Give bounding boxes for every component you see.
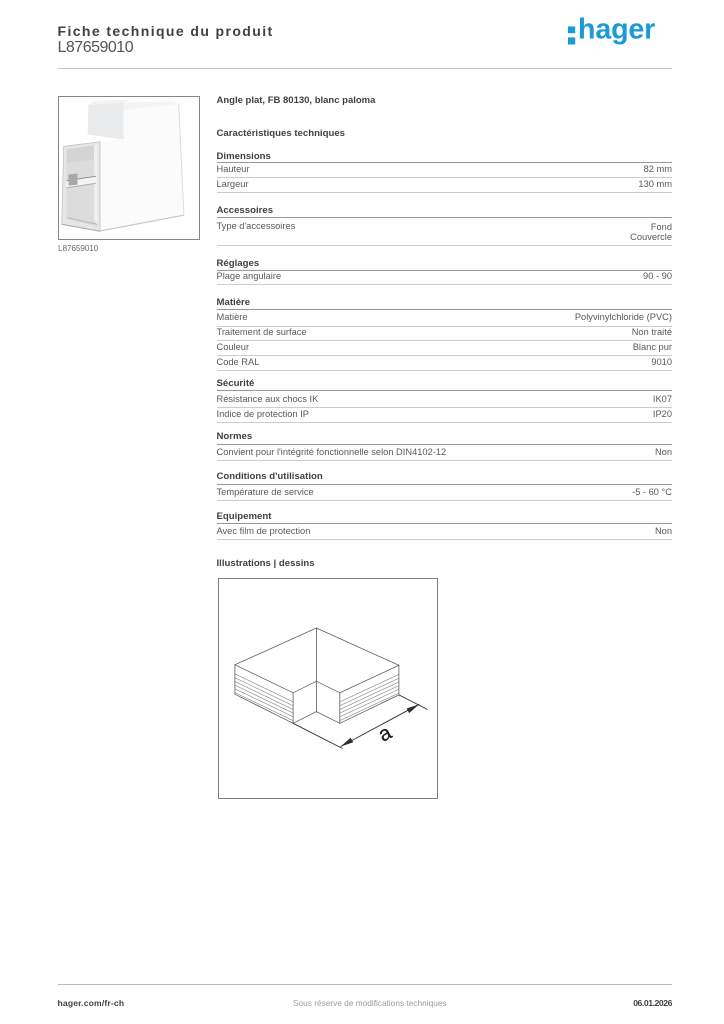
svg-text:hager: hager — [578, 13, 655, 45]
